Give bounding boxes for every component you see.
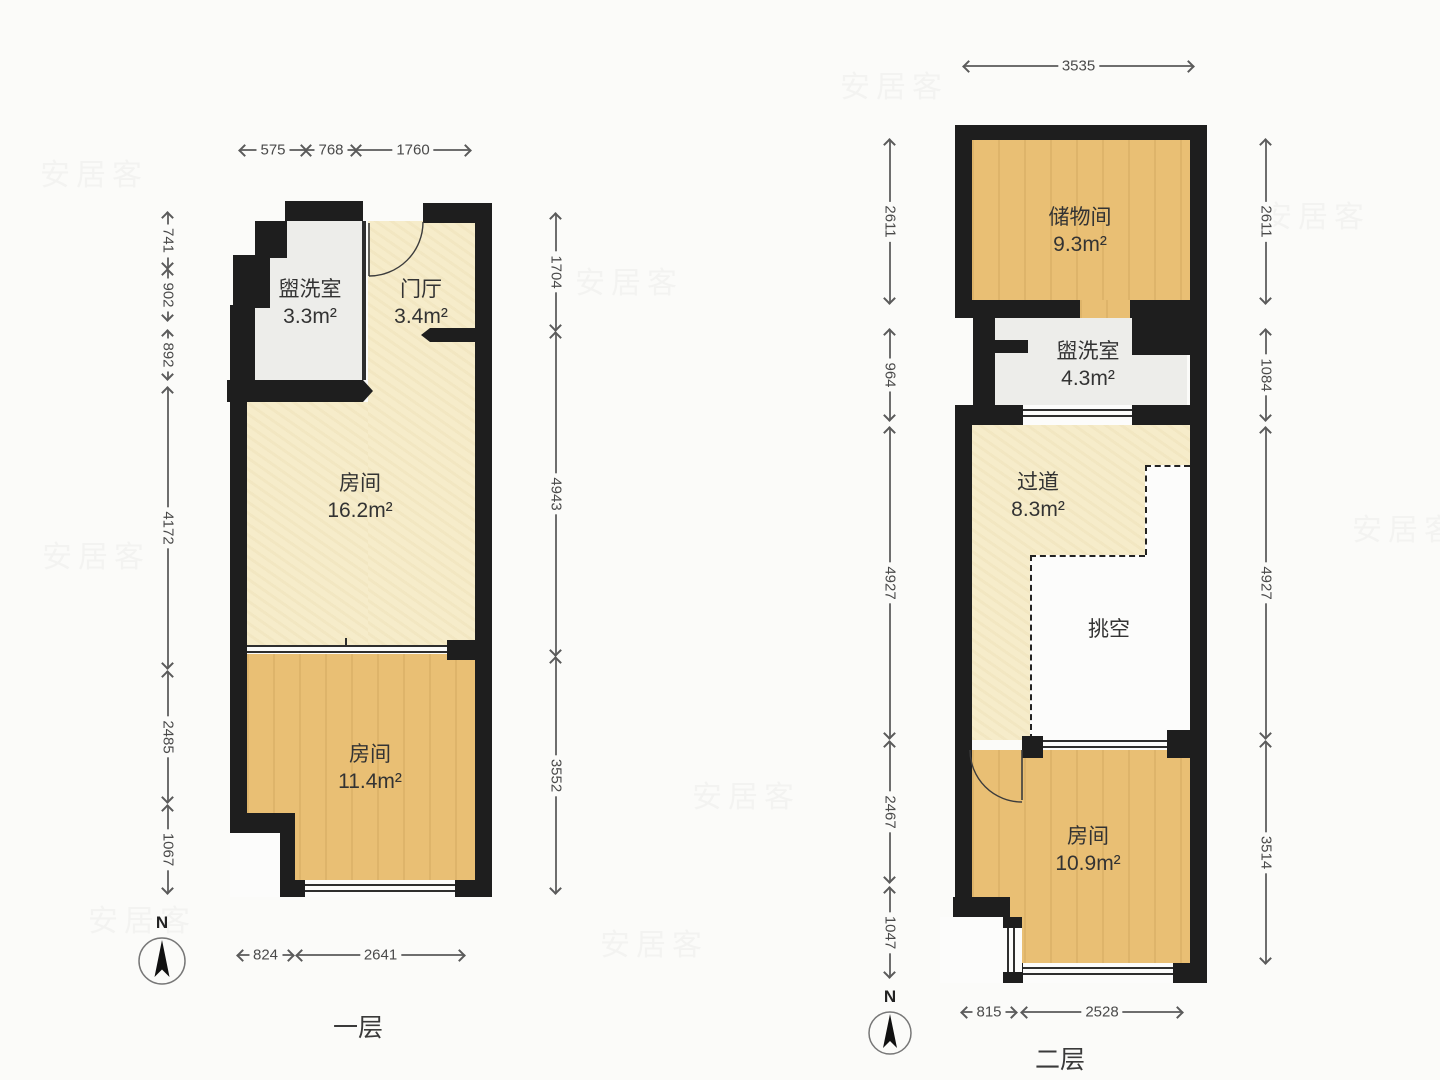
arrow-right-icon — [282, 949, 295, 962]
dimension-value: 2611 — [1259, 201, 1274, 241]
wall — [955, 125, 1207, 140]
room-label: 挑空 — [1088, 616, 1130, 643]
arrow-right-icon — [1182, 60, 1195, 73]
floorplan-image: 安居客安居客安居客安居客安居客安居客安居客安居客安居客 — [0, 0, 1440, 1080]
window — [305, 880, 455, 897]
arrow-right-icon — [549, 882, 562, 895]
dimension: 1084 — [1258, 330, 1274, 420]
arrow-right-icon — [883, 871, 896, 884]
watermark-text: 安居客 — [600, 920, 708, 964]
dimension: 4943 — [548, 333, 564, 655]
wall-block — [447, 640, 475, 660]
arrow-right-icon — [549, 644, 562, 657]
arrow-right-icon — [1259, 727, 1272, 740]
wall — [955, 405, 972, 917]
void-dashed-boundary — [1145, 465, 1190, 467]
arrow-left-icon — [1259, 740, 1272, 753]
arrow-left-icon — [238, 144, 251, 157]
dimension: 815 — [962, 1004, 1016, 1020]
room-label: 门厅3.4m² — [394, 276, 448, 330]
wall-end-cap — [421, 328, 430, 342]
void-dashed-boundary — [1030, 555, 1145, 557]
watermark-text: 安居客 — [1352, 505, 1440, 549]
window-line — [1023, 967, 1173, 969]
room-label: 盥洗室3.3m² — [279, 276, 342, 330]
dimension: 824 — [238, 947, 293, 963]
arrow-left-icon — [1020, 1006, 1033, 1019]
arrow-right-icon — [883, 966, 896, 979]
arrow-right-icon — [453, 949, 466, 962]
arrow-left-icon — [161, 386, 174, 399]
dimension-value: 768 — [314, 143, 347, 158]
window-line — [1023, 973, 1173, 975]
room-name: 储物间 — [1049, 204, 1112, 231]
arrow-right-icon — [161, 657, 174, 670]
void-area — [1030, 555, 1190, 740]
dimension-value: 964 — [883, 358, 898, 391]
arrow-right-icon — [459, 144, 472, 157]
plan-title-first-floor: 一层 — [333, 1008, 383, 1044]
room-divider-line — [247, 651, 447, 653]
dimension-value: 815 — [972, 1005, 1005, 1020]
arrow-left-icon — [1259, 328, 1272, 341]
arrow-left-icon — [549, 656, 562, 669]
dimension: 2641 — [297, 947, 464, 963]
window-line — [1007, 928, 1009, 972]
room-area: 11.4m² — [338, 768, 402, 795]
room-name: 房间 — [327, 470, 392, 497]
arrow-left-icon — [962, 60, 975, 73]
arrow-right-icon — [161, 882, 174, 895]
dimension-value: 2611 — [883, 201, 898, 241]
room-area: 8.3m² — [1011, 496, 1065, 523]
dimension-value: 4927 — [883, 562, 898, 603]
dimension: 892 — [160, 331, 176, 379]
dimension-value: 2485 — [161, 716, 176, 757]
wall-step — [233, 255, 270, 308]
dimension-value: 575 — [256, 143, 289, 158]
wall — [280, 880, 305, 897]
dimension: 1760 — [356, 142, 470, 158]
arrow-right-icon — [161, 791, 174, 804]
arrow-left-icon — [883, 886, 896, 899]
dimension: 3535 — [964, 58, 1193, 74]
wall — [230, 813, 295, 833]
wall — [230, 380, 247, 833]
room-name: 门厅 — [394, 276, 448, 303]
room-area: 3.4m² — [394, 303, 448, 330]
dimension: 1704 — [548, 214, 564, 330]
dimension-value: 1084 — [1259, 354, 1274, 395]
window-line — [1043, 740, 1167, 742]
dimension-value: 4943 — [549, 473, 564, 514]
dimension: 741 — [160, 213, 176, 268]
wall — [953, 897, 1010, 917]
dimension-value: 892 — [161, 338, 176, 371]
wall-stub — [995, 340, 1028, 353]
room-area: 10.9m² — [1055, 850, 1120, 877]
arrow-right-icon — [883, 727, 896, 740]
window-line — [1023, 415, 1132, 417]
room-label: 盥洗室4.3m² — [1057, 338, 1120, 392]
room-name: 过道 — [1011, 469, 1065, 496]
dimension: 4927 — [1258, 428, 1274, 738]
dimension: 2611 — [882, 140, 898, 303]
notch-outside — [230, 833, 280, 897]
arrow-left-icon — [549, 212, 562, 225]
void-dashed-boundary — [1145, 465, 1147, 555]
wall — [955, 300, 1080, 318]
wall-step — [230, 305, 255, 382]
arrow-left-icon — [1259, 426, 1272, 439]
room-label: 过道8.3m² — [1011, 469, 1065, 523]
washroom-floor — [287, 221, 362, 258]
room-name: 盥洗室 — [1057, 338, 1120, 365]
room-area: 9.3m² — [1049, 231, 1112, 258]
dimension: 4927 — [882, 428, 898, 738]
arrow-left-icon — [295, 949, 308, 962]
wall — [955, 125, 972, 318]
compass-icon: N — [860, 982, 920, 1062]
dimension: 2528 — [1022, 1004, 1182, 1020]
dimension-value: 824 — [249, 948, 282, 963]
room-name: 房间 — [1055, 823, 1120, 850]
room-divider-line — [247, 645, 447, 647]
plan-title-second-floor: 二层 — [1035, 1040, 1085, 1076]
dimension-value: 1047 — [883, 912, 898, 953]
compass-north-label: N — [884, 987, 896, 1006]
dimension-value: 1760 — [392, 143, 433, 158]
wall — [455, 880, 492, 897]
dimension-value: 2528 — [1081, 1005, 1122, 1020]
room-door-arc — [966, 746, 1026, 806]
dimension-value: 902 — [161, 278, 176, 311]
void-dashed-boundary — [1030, 555, 1032, 740]
dimension: 902 — [160, 270, 176, 320]
dimension-value: 3514 — [1259, 832, 1274, 873]
notch-outside — [940, 917, 1003, 983]
arrow-left-icon — [960, 1006, 973, 1019]
watermark-text: 安居客 — [575, 258, 683, 302]
window-line — [1013, 928, 1015, 972]
arrow-left-icon — [161, 211, 174, 224]
storage-doorway — [1080, 300, 1130, 318]
room-label: 房间11.4m² — [338, 741, 402, 795]
wall-block — [1132, 318, 1207, 355]
arrow-left-icon — [883, 138, 896, 151]
void-area — [1145, 465, 1190, 555]
compass-north-label: N — [156, 913, 168, 932]
compass-icon: N — [130, 906, 194, 990]
watermark-text: 安居客 — [1262, 192, 1370, 236]
room-label: 房间10.9m² — [1055, 823, 1120, 877]
window-line — [305, 884, 455, 886]
wall-end-cap — [363, 380, 373, 402]
dimension-value: 4927 — [1259, 562, 1274, 603]
dimension-value: 1067 — [161, 829, 176, 870]
room-name: 盥洗室 — [279, 276, 342, 303]
wall — [285, 201, 363, 221]
dimension: 2485 — [160, 672, 176, 802]
window-line — [1023, 409, 1132, 411]
dimension-value: 4172 — [161, 507, 176, 548]
arrow-right-icon — [1259, 952, 1272, 965]
wall — [227, 380, 363, 402]
watermark-text: 安居客 — [692, 772, 800, 816]
dimension-value: 2467 — [883, 791, 898, 832]
wall — [1132, 405, 1207, 425]
arrow-left-icon — [354, 144, 367, 157]
wall-step — [255, 221, 287, 258]
dimension: 964 — [882, 330, 898, 420]
dimension: 4172 — [160, 388, 176, 668]
wall — [1190, 125, 1207, 983]
watermark-text: 安居客 — [42, 532, 150, 576]
dimension: 575 — [240, 142, 306, 158]
dimension: 3552 — [548, 658, 564, 893]
entry-door-arc — [365, 218, 427, 280]
arrow-right-icon — [1259, 409, 1272, 422]
watermark-text: 安居客 — [40, 150, 148, 194]
arrow-left-icon — [161, 670, 174, 683]
divider-tick — [345, 638, 347, 645]
wall-block — [1167, 730, 1207, 758]
dimension-value: 741 — [161, 224, 176, 257]
dimension: 2467 — [882, 742, 898, 882]
window-line — [1043, 746, 1167, 748]
arrow-left-icon — [1259, 138, 1272, 151]
room-area: 4.3m² — [1057, 365, 1120, 392]
dimension: 1067 — [160, 806, 176, 893]
window-line — [305, 890, 455, 892]
arrow-left-icon — [549, 331, 562, 344]
dimension-value: 2641 — [360, 948, 401, 963]
wall — [1130, 300, 1207, 318]
arrow-right-icon — [549, 319, 562, 332]
watermark-text: 安居客 — [840, 62, 948, 106]
dimension-value: 3552 — [549, 755, 564, 796]
room-name: 挑空 — [1088, 616, 1130, 643]
arrow-right-icon — [883, 292, 896, 305]
wall — [475, 203, 492, 897]
dimension-value: 3535 — [1058, 59, 1099, 74]
room-area: 16.2m² — [327, 497, 392, 524]
arrow-left-icon — [883, 426, 896, 439]
dimension: 3514 — [1258, 742, 1274, 963]
room-name: 房间 — [338, 741, 402, 768]
arrow-left-icon — [236, 949, 249, 962]
arrow-right-icon — [883, 409, 896, 422]
arrow-left-icon — [883, 740, 896, 753]
arrow-left-icon — [161, 804, 174, 817]
room-label: 房间16.2m² — [327, 470, 392, 524]
arrow-right-icon — [1259, 292, 1272, 305]
wall — [1173, 963, 1207, 983]
dimension-value: 1704 — [549, 251, 564, 292]
arrow-left-icon — [883, 328, 896, 341]
arrow-right-icon — [1171, 1006, 1184, 1019]
dimension: 1047 — [882, 888, 898, 977]
dimension: 768 — [306, 142, 356, 158]
arrow-right-icon — [1005, 1006, 1018, 1019]
room-16-floor — [247, 402, 368, 646]
wall-stub — [430, 328, 492, 342]
room-area: 3.3m² — [279, 303, 342, 330]
dimension: 2611 — [1258, 140, 1274, 303]
room-label: 储物间9.3m² — [1049, 204, 1112, 258]
